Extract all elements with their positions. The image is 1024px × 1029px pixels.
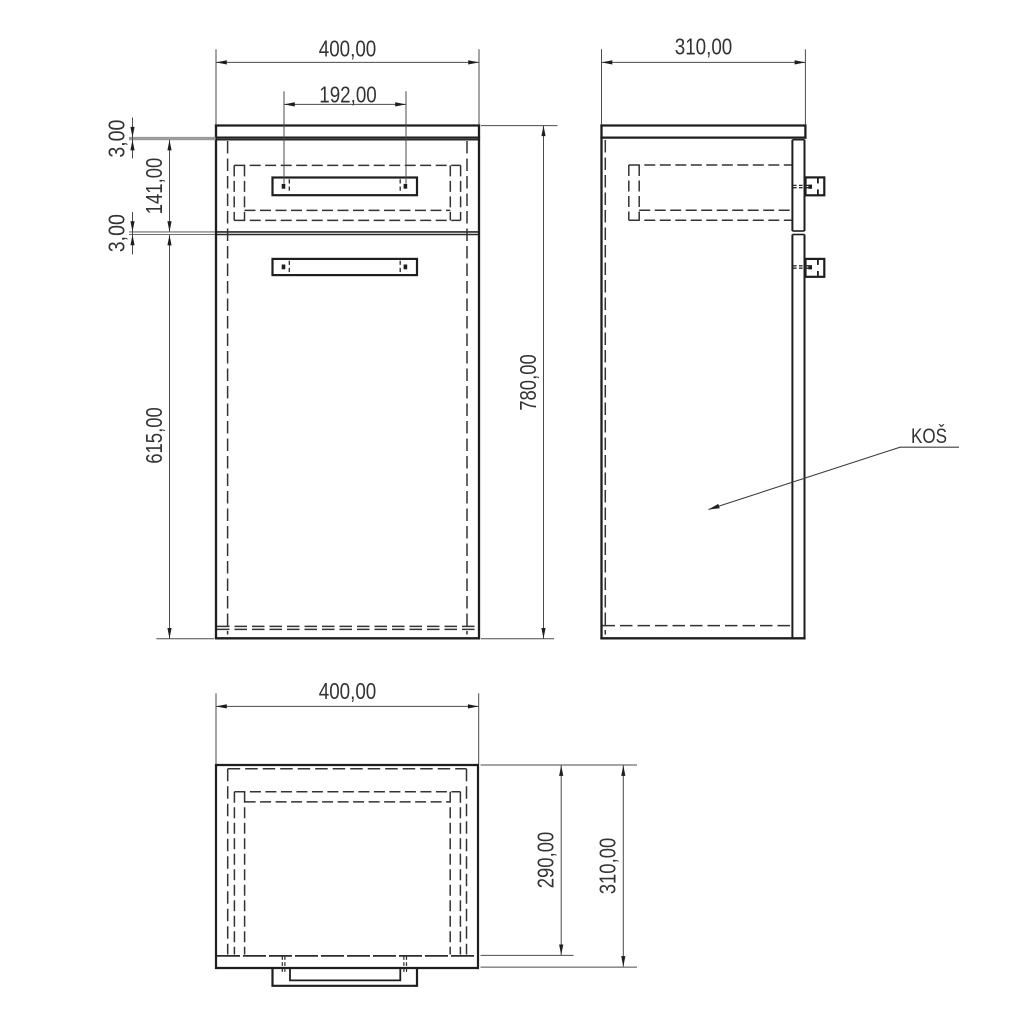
- svg-text:290,00: 290,00: [533, 832, 559, 889]
- svg-text:310,00: 310,00: [675, 34, 733, 60]
- svg-text:192,00: 192,00: [319, 81, 377, 107]
- svg-text:3,00: 3,00: [104, 214, 130, 252]
- svg-text:KOŠ: KOŠ: [911, 425, 947, 448]
- svg-text:780,00: 780,00: [515, 354, 541, 411]
- svg-text:3,00: 3,00: [104, 120, 130, 158]
- svg-text:400,00: 400,00: [319, 36, 377, 62]
- svg-text:310,00: 310,00: [595, 838, 621, 895]
- svg-text:615,00: 615,00: [141, 407, 167, 464]
- svg-text:400,00: 400,00: [319, 678, 377, 704]
- svg-text:141,00: 141,00: [141, 158, 167, 215]
